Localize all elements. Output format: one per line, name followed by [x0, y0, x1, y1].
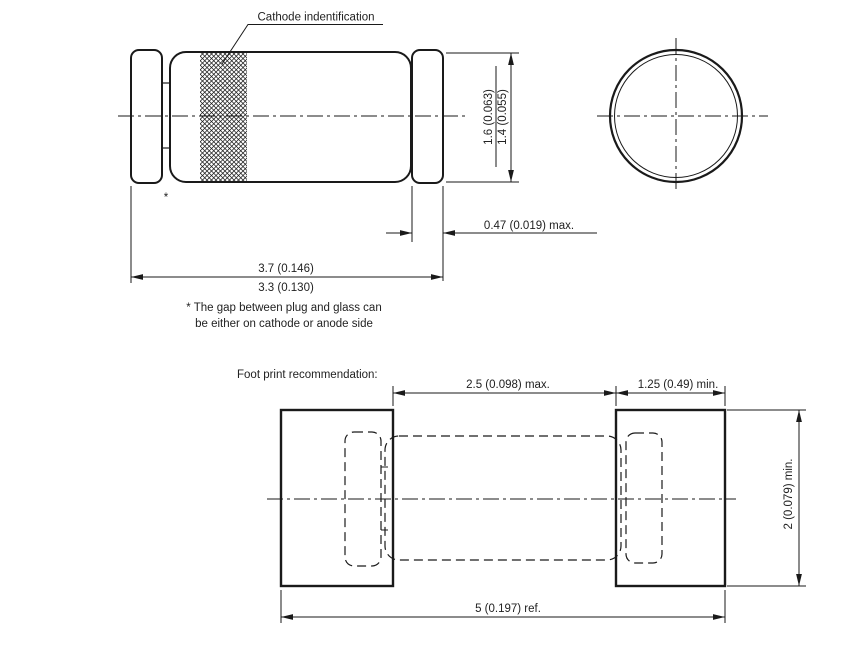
- package-outline-drawing: Cathode indentification * 1.6 (0.063) 1.…: [0, 0, 862, 654]
- footprint-pad-left: [281, 410, 393, 586]
- footprint-view: Foot print recommendation:: [237, 369, 736, 586]
- note-line2: be either on cathode or anode side: [195, 318, 373, 330]
- dim-pad-top: 2.5 (0.098) max. 1.25 (0.49) min.: [393, 379, 725, 406]
- end-view: [597, 38, 768, 193]
- dim-pad-height: 2 (0.079) min.: [727, 410, 806, 586]
- dim-pad-height-label: 2 (0.079) min.: [783, 459, 795, 530]
- dim-pad-width-label: 1.25 (0.49) min.: [638, 379, 719, 391]
- footprint-title: Foot print recommendation:: [237, 369, 378, 381]
- dim-pad-gap-label: 2.5 (0.098) max.: [466, 379, 550, 391]
- dim-cap-length-label: 0.47 (0.019) max.: [484, 220, 574, 232]
- dim-cap-length: 0.47 (0.019) max.: [386, 186, 597, 281]
- dim-total-length-label: 5 (0.197) ref.: [475, 603, 541, 615]
- cathode-band-hatch: [200, 53, 247, 181]
- note-line1: * The gap between plug and glass can: [186, 302, 381, 314]
- gap-asterisk: *: [164, 192, 169, 204]
- dim-length-max-label: 3.7 (0.146): [258, 263, 314, 275]
- dim-diameter: 1.6 (0.063) 1.4 (0.055): [446, 53, 519, 182]
- gap-note: * The gap between plug and glass can be …: [186, 302, 381, 330]
- dim-length-min-label: 3.3 (0.130): [258, 282, 314, 294]
- outline-cap-right-dashed: [626, 433, 662, 563]
- footprint-pad-right: [616, 410, 725, 586]
- side-view: Cathode indentification *: [118, 12, 466, 205]
- cathode-label: Cathode indentification: [258, 12, 375, 24]
- dim-diameter-min-label: 1.4 (0.055): [497, 89, 509, 145]
- outline-body-dashed: [385, 436, 621, 560]
- drawing-svg: Cathode indentification * 1.6 (0.063) 1.…: [0, 0, 862, 654]
- dim-diameter-max-label: 1.6 (0.063): [483, 89, 495, 145]
- dim-body-length: 3.7 (0.146) 3.3 (0.130): [131, 186, 443, 294]
- dim-footprint-length: 5 (0.197) ref.: [281, 590, 725, 623]
